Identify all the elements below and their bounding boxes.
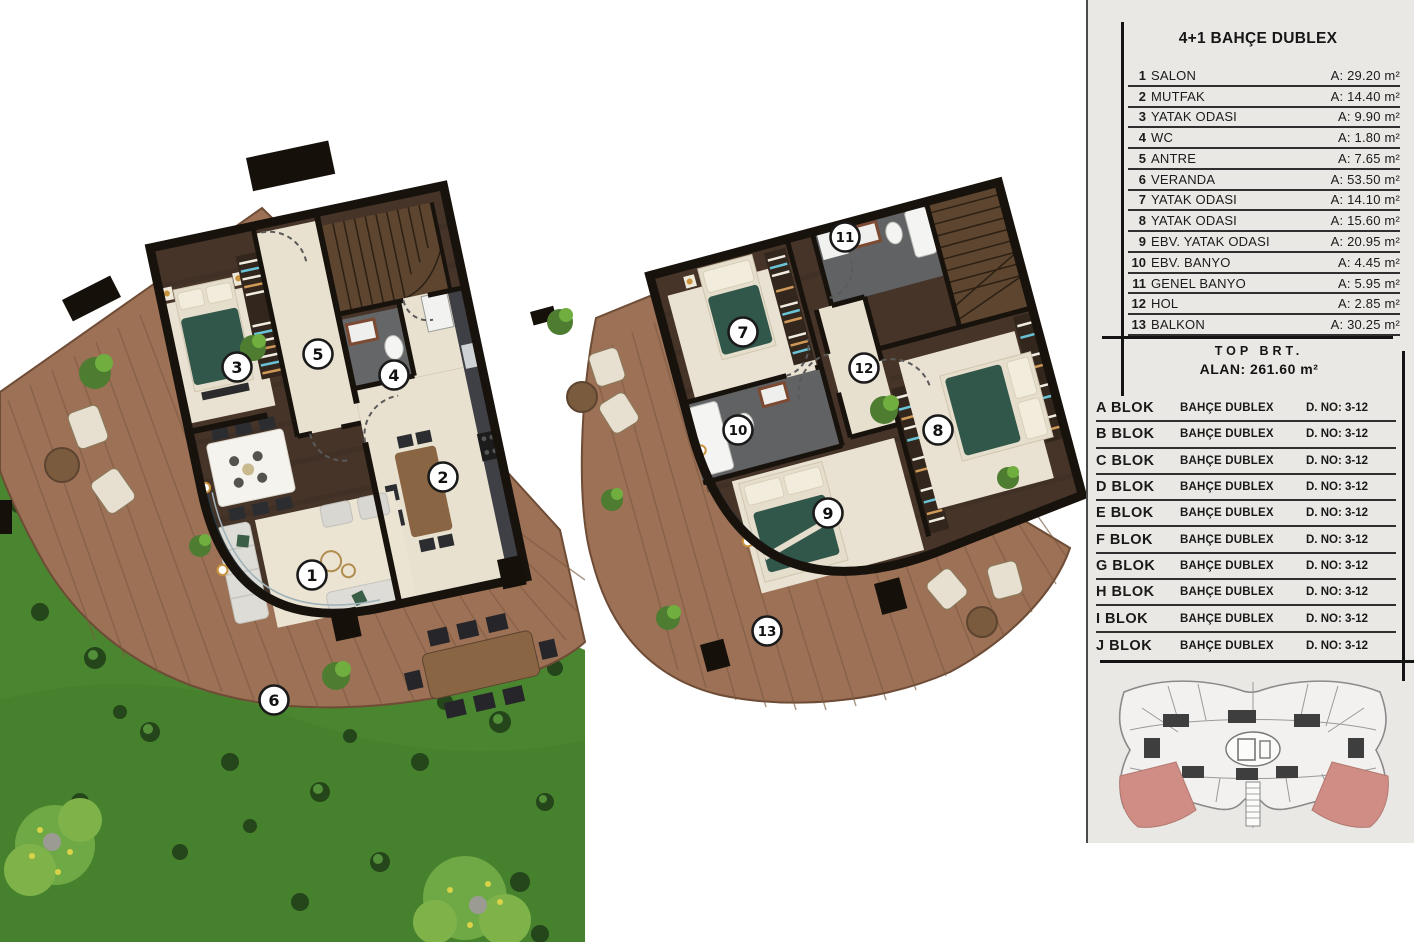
room-name: BALKON (1151, 317, 1302, 332)
room-no: 1 (1128, 68, 1146, 83)
block-row: J BLOK BAHÇE DUBLEX D. NO: 3-12 (1096, 633, 1396, 659)
room-marker-13: 13 (753, 617, 782, 646)
room-marker-10: 10 (724, 416, 753, 445)
room-row: 12 HOL A: 2.85 m² (1128, 294, 1400, 315)
block-door: D. NO: 3-12 (1306, 534, 1396, 546)
room-row: 3 YATAK ODASI A: 9.90 m² (1128, 108, 1400, 129)
divider-vertical-left (1121, 22, 1124, 396)
room-area: A: 53.50 m² (1302, 172, 1400, 187)
room-marker-1: 1 (298, 561, 327, 590)
room-row: 2 MUTFAK A: 14.40 m² (1128, 87, 1400, 108)
room-name: MUTFAK (1151, 89, 1302, 104)
svg-text:5: 5 (312, 345, 323, 364)
room-marker-12: 12 (850, 354, 879, 383)
room-marker-8: 8 (924, 416, 953, 445)
total-label: TOP BRT. (1128, 344, 1390, 358)
divider-vertical-right (1402, 351, 1405, 681)
room-no: 6 (1128, 172, 1146, 187)
room-no: 4 (1128, 130, 1146, 145)
block-name: B BLOK (1096, 426, 1180, 442)
room-marker-4: 4 (380, 361, 409, 390)
block-row: E BLOK BAHÇE DUBLEX D. NO: 3-12 (1096, 501, 1396, 527)
divider-horizontal-top (1102, 336, 1393, 339)
room-no: 8 (1128, 213, 1146, 228)
svg-text:1: 1 (306, 566, 317, 585)
room-area: A: 29.20 m² (1302, 68, 1400, 83)
svg-text:4: 4 (388, 366, 399, 385)
room-no: 7 (1128, 192, 1146, 207)
room-row: 5 ANTRE A: 7.65 m² (1128, 149, 1400, 170)
block-row: G BLOK BAHÇE DUBLEX D. NO: 3-12 (1096, 554, 1396, 580)
block-door: D. NO: 3-12 (1306, 455, 1396, 467)
svg-text:8: 8 (932, 421, 943, 440)
block-name: J BLOK (1096, 638, 1180, 654)
block-row: H BLOK BAHÇE DUBLEX D. NO: 3-12 (1096, 580, 1396, 606)
block-type: BAHÇE DUBLEX (1180, 428, 1306, 440)
block-type: BAHÇE DUBLEX (1180, 534, 1306, 546)
room-area: A: 2.85 m² (1302, 296, 1400, 311)
svg-text:3: 3 (231, 358, 242, 377)
block-door: D. NO: 3-12 (1306, 560, 1396, 572)
room-row: 4 WC A: 1.80 m² (1128, 128, 1400, 149)
room-row: 10 EBV. BANYO A: 4.45 m² (1128, 253, 1400, 274)
room-area-table: 1 SALON A: 29.20 m² 2 MUTFAK A: 14.40 m²… (1128, 66, 1400, 336)
room-area: A: 14.10 m² (1302, 192, 1400, 207)
room-no: 11 (1128, 276, 1146, 291)
room-area: A: 5.95 m² (1302, 276, 1400, 291)
room-marker-6: 6 (260, 686, 289, 715)
svg-text:12: 12 (855, 361, 874, 377)
block-row: I BLOK BAHÇE DUBLEX D. NO: 3-12 (1096, 606, 1396, 632)
block-type: BAHÇE DUBLEX (1180, 402, 1306, 414)
svg-text:6: 6 (268, 691, 279, 710)
svg-text:10: 10 (729, 423, 748, 439)
room-row: 8 YATAK ODASI A: 15.60 m² (1128, 211, 1400, 232)
block-row: C BLOK BAHÇE DUBLEX D. NO: 3-12 (1096, 449, 1396, 475)
room-marker-7: 7 (729, 318, 758, 347)
room-marker-2: 2 (429, 463, 458, 492)
room-area: A: 20.95 m² (1302, 234, 1400, 249)
room-row: 1 SALON A: 29.20 m² (1128, 66, 1400, 87)
room-name: EBV. YATAK ODASI (1151, 234, 1302, 249)
room-no: 9 (1128, 234, 1146, 249)
room-name: VERANDA (1151, 172, 1302, 187)
info-panel: 4+1 BAHÇE DUBLEX 1 SALON A: 29.20 m² 2 M… (1086, 0, 1414, 843)
block-row: D BLOK BAHÇE DUBLEX D. NO: 3-12 (1096, 475, 1396, 501)
block-list: A BLOK BAHÇE DUBLEX D. NO: 3-12 B BLOK B… (1096, 396, 1396, 659)
room-row: 7 YATAK ODASI A: 14.10 m² (1128, 191, 1400, 212)
room-row: 9 EBV. YATAK ODASI A: 20.95 m² (1128, 232, 1400, 253)
room-marker-5: 5 (304, 340, 333, 369)
block-name: E BLOK (1096, 505, 1180, 521)
key-plan (1108, 670, 1400, 840)
block-door: D. NO: 3-12 (1306, 428, 1396, 440)
total-area-value: ALAN: 261.60 m² (1128, 361, 1390, 377)
room-area: A: 1.80 m² (1302, 130, 1400, 145)
room-area: A: 4.45 m² (1302, 255, 1400, 270)
svg-text:11: 11 (836, 230, 855, 246)
room-name: YATAK ODASI (1151, 192, 1302, 207)
room-area: A: 7.65 m² (1302, 151, 1400, 166)
plan-title: 4+1 BAHÇE DUBLEX (1128, 30, 1388, 48)
room-name: SALON (1151, 68, 1302, 83)
room-area: A: 9.90 m² (1302, 109, 1400, 124)
total-area-block: TOP BRT. ALAN: 261.60 m² (1128, 344, 1390, 377)
block-type: BAHÇE DUBLEX (1180, 455, 1306, 467)
room-no: 5 (1128, 151, 1146, 166)
room-name: ANTRE (1151, 151, 1302, 166)
block-type: BAHÇE DUBLEX (1180, 560, 1306, 572)
block-name: D BLOK (1096, 479, 1180, 495)
block-door: D. NO: 3-12 (1306, 586, 1396, 598)
floorplan-page: { "panel": { "title": "4+1 BAHÇE DUBLEX"… (0, 0, 1414, 942)
block-type: BAHÇE DUBLEX (1180, 481, 1306, 493)
room-no: 3 (1128, 109, 1146, 124)
block-name: A BLOK (1096, 400, 1180, 416)
svg-text:9: 9 (822, 504, 833, 523)
svg-text:13: 13 (758, 624, 777, 640)
block-name: F BLOK (1096, 532, 1180, 548)
room-row: 6 VERANDA A: 53.50 m² (1128, 170, 1400, 191)
room-no: 13 (1128, 317, 1146, 332)
block-type: BAHÇE DUBLEX (1180, 507, 1306, 519)
room-marker-3: 3 (223, 353, 252, 382)
room-row: 11 GENEL BANYO A: 5.95 m² (1128, 274, 1400, 295)
room-area: A: 30.25 m² (1302, 317, 1400, 332)
block-type: BAHÇE DUBLEX (1180, 613, 1306, 625)
block-door: D. NO: 3-12 (1306, 402, 1396, 414)
block-door: D. NO: 3-12 (1306, 640, 1396, 652)
block-row: B BLOK BAHÇE DUBLEX D. NO: 3-12 (1096, 422, 1396, 448)
block-name: I BLOK (1096, 611, 1180, 627)
room-name: YATAK ODASI (1151, 109, 1302, 124)
room-area: A: 15.60 m² (1302, 213, 1400, 228)
block-name: C BLOK (1096, 453, 1180, 469)
svg-text:2: 2 (437, 468, 448, 487)
svg-text:7: 7 (737, 323, 748, 342)
divider-horizontal-bottom (1100, 660, 1414, 663)
room-name: WC (1151, 130, 1302, 145)
room-no: 2 (1128, 89, 1146, 104)
room-name: HOL (1151, 296, 1302, 311)
block-door: D. NO: 3-12 (1306, 507, 1396, 519)
room-no: 12 (1128, 296, 1146, 311)
block-door: D. NO: 3-12 (1306, 481, 1396, 493)
block-name: H BLOK (1096, 584, 1180, 600)
block-type: BAHÇE DUBLEX (1180, 586, 1306, 598)
room-area: A: 14.40 m² (1302, 89, 1400, 104)
room-marker-9: 9 (814, 499, 843, 528)
room-name: EBV. BANYO (1151, 255, 1302, 270)
room-marker-11: 11 (831, 223, 860, 252)
room-name: YATAK ODASI (1151, 213, 1302, 228)
block-row: A BLOK BAHÇE DUBLEX D. NO: 3-12 (1096, 396, 1396, 422)
block-type: BAHÇE DUBLEX (1180, 640, 1306, 652)
block-name: G BLOK (1096, 558, 1180, 574)
room-name: GENEL BANYO (1151, 276, 1302, 291)
room-row: 13 BALKON A: 30.25 m² (1128, 315, 1400, 336)
block-row: F BLOK BAHÇE DUBLEX D. NO: 3-12 (1096, 527, 1396, 553)
floor-plans-canvas: 1 2 3 4 5 6 7 8 9 10 11 12 13 (0, 0, 1086, 942)
room-no: 10 (1128, 255, 1146, 270)
block-door: D. NO: 3-12 (1306, 613, 1396, 625)
